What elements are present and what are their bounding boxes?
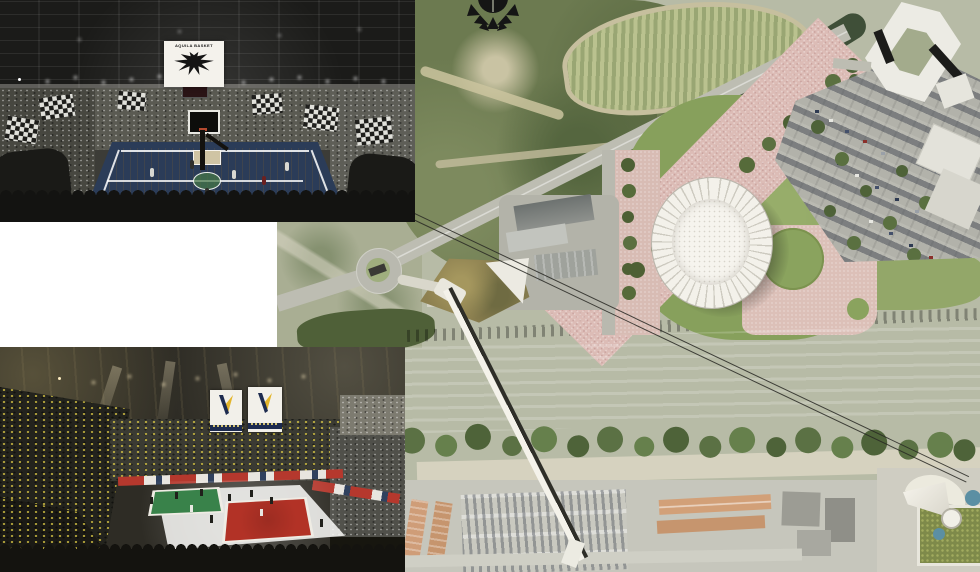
bk-player-1 [150, 168, 154, 177]
tree-row-plaza-edge [629, 262, 645, 278]
circular-lawn-small [847, 298, 869, 320]
parking-trees [811, 120, 825, 134]
grey-building-3 [797, 530, 831, 556]
vb-player-1 [150, 497, 153, 504]
river [395, 323, 980, 434]
trentino-volley-v-icon [216, 392, 236, 418]
parking-cars [815, 110, 819, 113]
presentation-collage: AQUILA BASKET [0, 0, 980, 572]
vb-player-2 [175, 492, 178, 499]
volley-banner-2 [248, 387, 282, 432]
vb-player-10 [320, 519, 323, 527]
vb-court-red-area [225, 499, 311, 541]
bk-player-2 [190, 160, 194, 169]
bk-player-4 [262, 176, 266, 185]
vb-crowd-upper-right [340, 395, 405, 435]
vb-player-3 [200, 489, 203, 496]
vb-player-6 [270, 497, 273, 504]
trentino-volley-v-icon [255, 390, 275, 416]
aquila-banner-text: AQUILA BASKET [164, 43, 224, 49]
volley-banner-1 [210, 390, 242, 432]
vb-court-green-half [151, 489, 221, 514]
bk-checkered-flag-4 [303, 104, 340, 132]
blank-panel [0, 222, 277, 347]
grey-building-1 [781, 491, 820, 526]
bk-checkered-flag-3 [251, 93, 282, 115]
volley-banner-strip [248, 423, 282, 429]
station-anchor-circle [941, 508, 962, 529]
basketball-photo: AQUILA BASKET [0, 0, 415, 222]
station-skylight-blue-1 [965, 490, 980, 506]
bk-player-6 [285, 162, 289, 171]
vb-spotlights [58, 377, 61, 380]
bk-ceiling-lights [18, 78, 21, 81]
vb-player-8 [260, 509, 263, 516]
aquila-banner: AQUILA BASKET [164, 41, 224, 87]
vb-near-crowd [0, 549, 405, 572]
bk-player-3 [232, 170, 236, 179]
bk-checkered-flag-2 [117, 91, 146, 111]
bk-checkered-flag-5 [355, 116, 394, 146]
tree-column-west [621, 158, 635, 172]
volley-banner-strip [210, 425, 242, 431]
vb-player-5 [250, 490, 253, 497]
bk-checkered-flag-1 [39, 94, 76, 121]
volley-banner-microtext [213, 425, 239, 427]
volley-banner-microtext [251, 423, 279, 425]
eagle-emblem-icon [172, 50, 216, 78]
bk-checkered-flag-6 [4, 116, 39, 145]
bk-near-crowd [0, 196, 415, 222]
vb-player-4 [228, 494, 231, 501]
station-skylight-blue-2 [933, 528, 945, 540]
winged-ball-crest-icon [463, 0, 523, 38]
bk-key-far [193, 150, 221, 165]
volleyball-photo [0, 347, 405, 572]
vb-player-9 [210, 515, 213, 523]
vb-player-7 [190, 505, 193, 512]
arena-roof-center [672, 199, 750, 285]
